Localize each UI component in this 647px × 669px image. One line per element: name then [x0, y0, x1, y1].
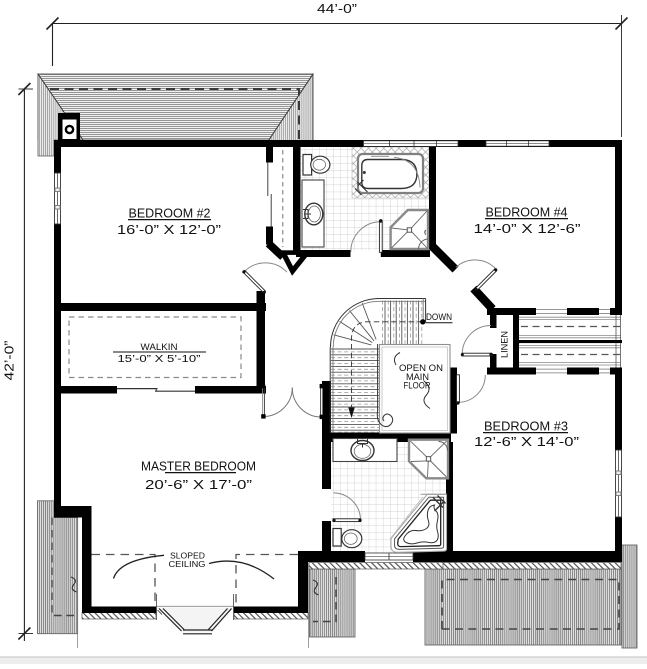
svg-text:DOWN: DOWN	[426, 311, 452, 322]
svg-text:LINEN: LINEN	[499, 331, 510, 358]
svg-text:FLOOR: FLOOR	[404, 380, 431, 391]
svg-text:BEDROOM #3: BEDROOM #3	[484, 419, 568, 434]
svg-text:20’-6” X 17’-0”: 20’-6” X 17’-0”	[145, 477, 252, 492]
svg-text:BEDROOM #4: BEDROOM #4	[486, 205, 568, 220]
svg-text:MASTER BEDROOM: MASTER BEDROOM	[141, 459, 256, 474]
svg-text:CEILING: CEILING	[169, 559, 206, 569]
svg-text:WALKIN: WALKIN	[141, 342, 178, 353]
svg-text:12’-6” X 14’-0”: 12’-6” X 14’-0”	[474, 434, 579, 449]
svg-text:16’-0” X 12’-0”: 16’-0” X 12’-0”	[117, 222, 221, 237]
svg-text:42’-0”: 42’-0”	[3, 341, 17, 381]
svg-text:BEDROOM #2: BEDROOM #2	[129, 206, 211, 221]
svg-text:14’-0” X 12’-6”: 14’-0” X 12’-6”	[474, 221, 581, 236]
svg-text:44’-0”: 44’-0”	[317, 2, 357, 16]
svg-text:15’-0” X 5’-10”: 15’-0” X 5’-10”	[118, 354, 201, 365]
